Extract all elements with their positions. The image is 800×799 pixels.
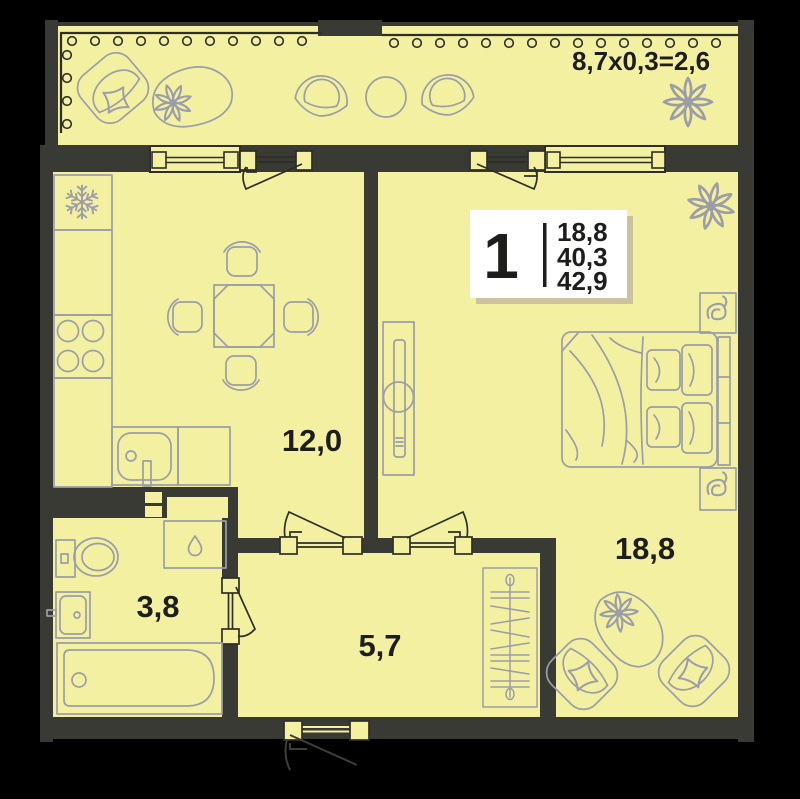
window-bedroom <box>545 146 665 172</box>
kitchen-living-area-label: 12,0 <box>282 423 342 458</box>
hallway-area-label: 5,7 <box>358 628 401 663</box>
balcony-dimension-label: 8,7x0,3=2,6 <box>572 46 710 76</box>
room-count-label: 1 <box>483 220 519 292</box>
floor-plan: 12,0 18,8 3,8 5,7 8,7x0,3=2,6 1 18,8 40,… <box>0 0 800 799</box>
bedroom-area-label: 18,8 <box>615 531 675 566</box>
unit-info-card: 1 18,8 40,3 42,9 <box>470 210 633 304</box>
card-divider <box>543 223 547 287</box>
window-living <box>150 146 240 172</box>
total-area-value: 42,9 <box>557 266 608 296</box>
bathroom-area-label: 3,8 <box>136 589 179 624</box>
